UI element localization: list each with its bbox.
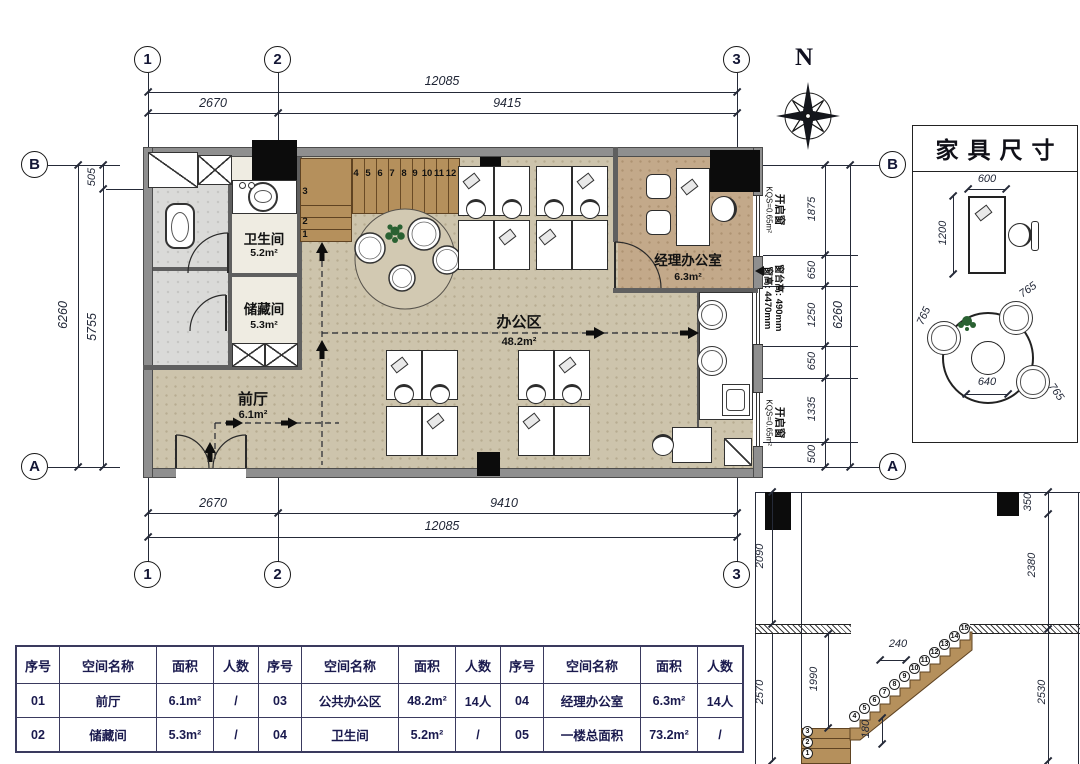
- dim-line: [772, 634, 773, 762]
- th-name: 空间名称: [302, 647, 398, 683]
- dim-right-s0: 1875: [806, 179, 818, 239]
- desk: [672, 427, 712, 463]
- desk: [494, 220, 530, 270]
- grid-line: [278, 478, 279, 562]
- dim-240: 240: [880, 638, 916, 650]
- cell: 48.2m²: [399, 684, 455, 717]
- chair-icon: [544, 199, 564, 219]
- dim-desk-depth: 1200: [937, 203, 949, 263]
- dim-line-top-segs: [148, 113, 737, 114]
- dim-top-seg1: 2670: [185, 96, 241, 110]
- dim-1990: 1990: [808, 649, 820, 709]
- chair-icon: [466, 199, 486, 219]
- ext-line: [48, 165, 120, 166]
- room-label-storage: 储藏间: [232, 298, 296, 318]
- th-name: 空间名称: [60, 647, 156, 683]
- dim-180: 180: [860, 709, 872, 749]
- cell: 一楼总面积: [544, 718, 640, 751]
- manager-chair-icon: [711, 196, 737, 222]
- corner-fixture: [724, 438, 752, 466]
- cell: 05: [501, 718, 543, 751]
- chair-icon: [502, 199, 522, 219]
- window-note-line2: KQS=0.65m²: [764, 180, 773, 240]
- dim-top-seg2: 9415: [475, 96, 539, 110]
- desk: [536, 220, 572, 270]
- grid-bubble-1-bottom: 1: [134, 561, 161, 588]
- cell: 经理办公室: [544, 684, 640, 717]
- th-people: 人数: [456, 647, 500, 683]
- guest-chair-icon: [646, 174, 671, 199]
- dim-top-total: 12085: [410, 74, 474, 88]
- th-name: 空间名称: [544, 647, 640, 683]
- dim-2530: 2530: [1036, 662, 1048, 722]
- cell: 公共办公区: [302, 684, 398, 717]
- dim-line: [828, 634, 829, 728]
- window-note-sill: 窗台高: 490mm 窗高: 4470mm: [761, 256, 783, 340]
- window-note-line2: KQS=0.65m²: [764, 393, 773, 453]
- step-number: 15: [959, 623, 970, 634]
- dim-line-right-segs: [825, 165, 826, 467]
- floor-plan-sheet: 1 2 3 12085 2670 9415 N B A 6260 505 575…: [0, 0, 1080, 764]
- sink-basin: [726, 389, 745, 411]
- cell: 前厅: [60, 684, 156, 717]
- chair-icon: [430, 384, 450, 404]
- grid-bubble-B-left: B: [21, 151, 48, 178]
- room-schedule-table: 序号 空间名称 面积 人数 序号 空间名称 面积 人数 序号 空间名称 面积 人…: [15, 645, 744, 753]
- compass-north-label: N: [795, 44, 813, 72]
- th-area: 面积: [399, 647, 455, 683]
- ext-line: [48, 467, 120, 468]
- dim-350: 350: [1022, 482, 1034, 522]
- grid-bubble-B-right: B: [879, 151, 906, 178]
- cell: /: [214, 718, 258, 751]
- step-number: 12: [929, 647, 940, 658]
- step-number: 9: [899, 671, 910, 682]
- th-seq: 序号: [501, 647, 543, 683]
- room-area-foyer: 6.1m²: [226, 409, 280, 421]
- cell: /: [698, 718, 742, 751]
- cell: /: [214, 684, 258, 717]
- chair-icon: [927, 321, 961, 355]
- dim-right-total: 6260: [831, 285, 845, 345]
- step-number: 7: [879, 687, 890, 698]
- grid-bubble-3-top: 3: [723, 46, 750, 73]
- dim-line-left-total: [78, 165, 79, 467]
- grid-bubble-2-top: 2: [264, 46, 291, 73]
- column: [765, 492, 791, 530]
- dim-desk-width: 600: [960, 173, 1014, 185]
- dim-bottom-seg2: 9410: [472, 496, 536, 510]
- dim-line: [966, 394, 1008, 395]
- room-label-bathroom: 卫生间: [232, 228, 296, 248]
- desk: [572, 220, 608, 270]
- window-note-line1: 开启窗: [774, 393, 786, 453]
- th-area: 面积: [641, 647, 697, 683]
- step-number: 6: [869, 695, 880, 706]
- chair-icon: [526, 384, 546, 404]
- dim-line-right-total: [850, 165, 851, 467]
- dim-line-bottom-segs: [148, 513, 737, 514]
- cell: /: [456, 718, 500, 751]
- room-label-foyer: 前厅: [223, 388, 283, 409]
- sill-height: 窗台高: 490mm: [772, 256, 783, 340]
- desk: [386, 406, 422, 456]
- cell: 5.2m²: [399, 718, 455, 751]
- step-number: 10: [909, 663, 920, 674]
- dim-bottom-total: 12085: [410, 519, 474, 533]
- room-area-bathroom: 5.2m²: [237, 247, 291, 259]
- dim-table-diameter: 640: [966, 376, 1008, 388]
- cell: 6.3m²: [641, 684, 697, 717]
- chair-icon: [1008, 223, 1032, 247]
- dim-line-left-segs: [103, 165, 104, 467]
- cell: 01: [17, 684, 59, 717]
- chair-icon: [580, 199, 600, 219]
- grid-bubble-1-top: 1: [134, 46, 161, 73]
- room-area-storage: 5.3m²: [237, 319, 291, 331]
- desk: [518, 406, 554, 456]
- cell: 14人: [456, 684, 500, 717]
- cell: 02: [17, 718, 59, 751]
- desk: [458, 220, 494, 270]
- table-center: [971, 341, 1005, 375]
- desk: [554, 406, 590, 456]
- window-note-bottom: 开启窗 KQS=0.65m²: [764, 393, 785, 453]
- dim-2570: 2570: [754, 662, 766, 722]
- dim-left-total: 6260: [56, 285, 70, 345]
- th-people: 人数: [214, 647, 258, 683]
- window-note-line1: 开启窗: [774, 180, 786, 240]
- cell: 6.1m²: [157, 684, 213, 717]
- dim-line: [953, 196, 954, 274]
- cell: 04: [501, 684, 543, 717]
- ext-line: [106, 189, 143, 190]
- floor-slab: [970, 624, 1080, 634]
- step-number: 4: [849, 711, 860, 722]
- cell: 04: [259, 718, 301, 751]
- guest-chair-icon: [646, 210, 671, 235]
- column: [997, 492, 1019, 516]
- window-height: 窗高: 4470mm: [761, 256, 772, 340]
- cell: 卫生间: [302, 718, 398, 751]
- step-number: 11: [919, 655, 930, 666]
- room-area-office: 48.2m²: [492, 336, 546, 348]
- room-label-office: 办公区: [489, 311, 549, 332]
- dim-right-s5: 500: [806, 429, 818, 479]
- chair-icon: [999, 301, 1033, 335]
- dim-tick: [768, 757, 776, 764]
- th-seq: 序号: [259, 647, 301, 683]
- room-area-manager: 6.3m²: [661, 271, 715, 283]
- plant-icon: [962, 316, 972, 326]
- dim-2380: 2380: [1026, 535, 1038, 595]
- dim-left-seg1: 505: [86, 157, 98, 197]
- grid-line: [148, 478, 149, 562]
- grid-bubble-A-left: A: [21, 453, 48, 480]
- window-note-top: 开启窗 KQS=0.65m²: [764, 180, 785, 240]
- th-people: 人数: [698, 647, 742, 683]
- room-label-manager: 经理办公室: [645, 249, 731, 269]
- th-area: 面积: [157, 647, 213, 683]
- dim-line-bottom-total: [148, 537, 737, 538]
- dim-line: [968, 189, 1006, 190]
- dim-left-seg2: 5755: [85, 297, 99, 357]
- stool-icon: [697, 300, 727, 330]
- grid-bubble-3-bottom: 3: [723, 561, 750, 588]
- dim-2090: 2090: [754, 526, 766, 586]
- step-number: 1: [802, 748, 813, 759]
- step-number: 2: [802, 737, 813, 748]
- chair-icon: [394, 384, 414, 404]
- step-number: 14: [949, 631, 960, 642]
- desk: [422, 406, 458, 456]
- grid-bubble-2-bottom: 2: [264, 561, 291, 588]
- cell: 14人: [698, 684, 742, 717]
- step-number: 8: [889, 679, 900, 690]
- stool-icon: [697, 346, 727, 376]
- step-number: 13: [939, 639, 950, 650]
- dim-line: [772, 492, 773, 624]
- chair-icon: [562, 384, 582, 404]
- cell: 03: [259, 684, 301, 717]
- grid-line: [737, 478, 738, 562]
- cell: 5.3m²: [157, 718, 213, 751]
- step-number: 3: [802, 726, 813, 737]
- furniture-panel-title: 家具尺寸: [912, 125, 1078, 172]
- grid-bubble-A-right: A: [879, 453, 906, 480]
- chair-icon: [652, 434, 674, 456]
- compass-icon: [772, 76, 844, 156]
- cell: 储藏间: [60, 718, 156, 751]
- th-seq: 序号: [17, 647, 59, 683]
- dim-line-top-total: [148, 92, 737, 93]
- cell: 73.2m²: [641, 718, 697, 751]
- chair-back: [1031, 221, 1039, 251]
- dim-bottom-seg1: 2670: [185, 496, 241, 510]
